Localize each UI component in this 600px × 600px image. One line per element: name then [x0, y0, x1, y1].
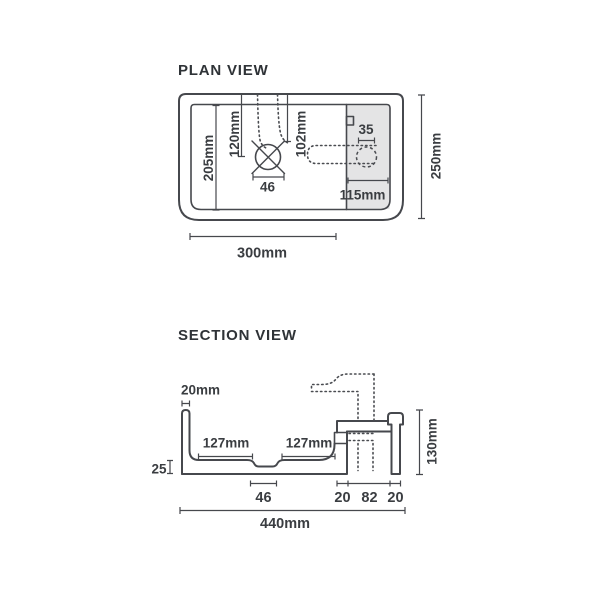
- plan-dim-300: 300mm: [190, 233, 336, 262]
- section-dim-20mm-label: 20mm: [181, 383, 220, 398]
- plan-dim-205-label: 205mm: [201, 135, 216, 182]
- section-dim-130-label: 130mm: [425, 418, 440, 465]
- plan-dim-250-line: [418, 95, 425, 219]
- section-dim-440: 440mm: [180, 507, 405, 532]
- section-faucet-spout-dashed-top: [312, 374, 375, 391]
- section-dim-127-left-line: [199, 454, 253, 460]
- section-deck-slab: [337, 421, 392, 433]
- basin-dimension-diagram: PLAN VIEW 205mm 120mm: [0, 0, 600, 600]
- section-dim-25: 25: [151, 461, 173, 477]
- plan-dim-120: 120mm: [227, 94, 245, 157]
- plan-dim-115-label: 115mm: [340, 188, 386, 203]
- section-dim-127-left: 127mm: [199, 436, 253, 460]
- section-dim-440-label: 440mm: [260, 516, 310, 532]
- plan-dim-35: 35: [358, 122, 374, 144]
- plan-dim-102: 102mm: [284, 94, 309, 157]
- plan-dim-205: 205mm: [201, 106, 220, 211]
- plan-dim-102-label: 102mm: [294, 111, 309, 158]
- plan-view: PLAN VIEW 205mm 120mm: [178, 62, 444, 262]
- section-dim-20-82-20-line: [337, 481, 401, 487]
- plan-dim-250-label: 250mm: [429, 133, 444, 180]
- plan-dim-300-line: [190, 233, 336, 240]
- section-dim-25-label: 25: [151, 462, 167, 477]
- technical-drawing-page: PLAN VIEW 205mm 120mm: [0, 0, 600, 600]
- section-dim-20-82-20: 20 82 20: [334, 481, 403, 507]
- plan-view-title: PLAN VIEW: [178, 62, 269, 79]
- section-dim-25-line: [167, 461, 173, 474]
- plan-drain-cross: [252, 141, 285, 174]
- section-dim-20mm-line: [182, 401, 190, 407]
- plan-dim-46: 46: [253, 174, 284, 195]
- plan-dim-250: 250mm: [418, 95, 444, 219]
- section-dim-130-line: [416, 410, 423, 475]
- section-dim-46-label: 46: [255, 490, 271, 506]
- section-dim-20-left-label: 20: [334, 490, 350, 506]
- section-dim-440-line: [180, 507, 405, 514]
- section-view: SECTION VIEW 20mm 127mm 127mm: [151, 327, 439, 532]
- section-rear-wall: [388, 413, 403, 474]
- section-dim-20-right-label: 20: [387, 490, 403, 506]
- section-dim-46-line: [251, 481, 277, 487]
- plan-dim-35-label: 35: [358, 122, 374, 137]
- section-dim-127-right: 127mm: [282, 436, 335, 460]
- section-faucet-fixing-dashed: [349, 434, 373, 471]
- plan-dim-120-label: 120mm: [227, 111, 242, 158]
- section-dim-20mm: 20mm: [181, 383, 220, 407]
- plan-faucet-spout-dashed-left: [258, 95, 268, 149]
- section-dim-82-label: 82: [361, 490, 377, 506]
- section-dim-127-left-label: 127mm: [203, 436, 250, 451]
- plan-dim-46-label: 46: [260, 180, 276, 195]
- section-view-title: SECTION VIEW: [178, 327, 297, 344]
- section-overflow-tab: [335, 433, 348, 444]
- section-faucet-spout-dashed-bottom: [312, 392, 359, 421]
- plan-dim-300-label: 300mm: [237, 246, 287, 262]
- plan-faucet-spout-dashed-right: [278, 95, 291, 145]
- section-dim-127-right-label: 127mm: [286, 436, 333, 451]
- section-dim-46: 46: [251, 481, 277, 507]
- section-dim-130: 130mm: [416, 410, 440, 475]
- plan-dim-102-line: [284, 94, 291, 142]
